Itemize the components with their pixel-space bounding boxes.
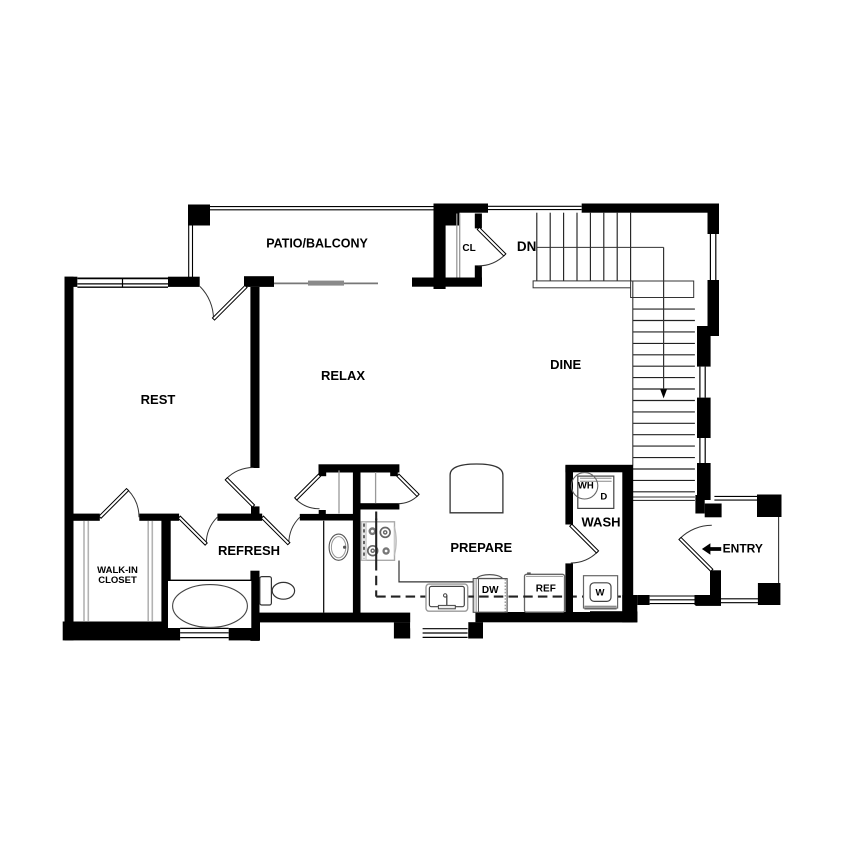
svg-text:DINE: DINE	[550, 357, 581, 372]
svg-text:ENTRY: ENTRY	[723, 542, 763, 556]
svg-text:WASH: WASH	[582, 514, 621, 529]
svg-text:REST: REST	[141, 392, 176, 407]
svg-text:CLOSET: CLOSET	[98, 575, 137, 586]
svg-text:PREPARE: PREPARE	[450, 540, 512, 555]
svg-text:WH: WH	[578, 480, 594, 491]
svg-text:PATIO/BALCONY: PATIO/BALCONY	[266, 237, 368, 251]
svg-text:DN: DN	[517, 239, 537, 254]
svg-text:CL: CL	[462, 243, 475, 254]
svg-text:RELAX: RELAX	[321, 368, 365, 383]
svg-text:W: W	[596, 588, 605, 599]
svg-text:D: D	[600, 492, 607, 503]
svg-text:REF: REF	[536, 583, 556, 594]
svg-text:DW: DW	[482, 585, 499, 596]
svg-text:REFRESH: REFRESH	[218, 543, 280, 558]
